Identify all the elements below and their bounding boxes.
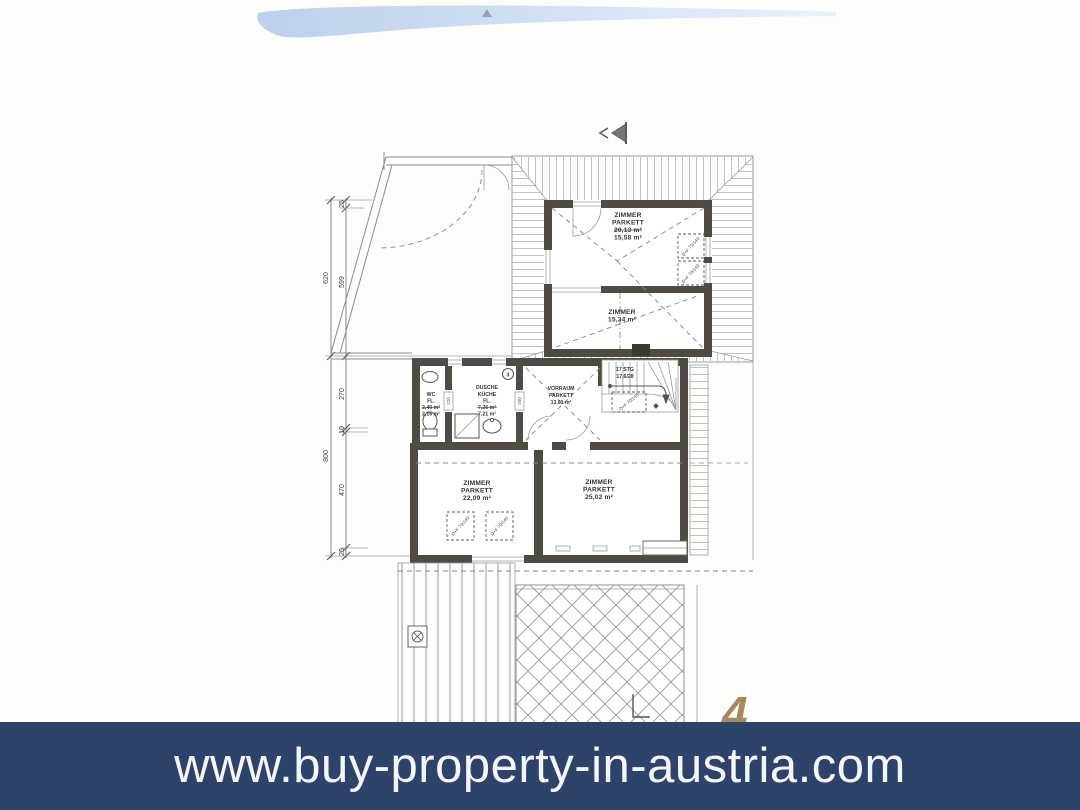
terrace-lower bbox=[398, 563, 753, 732]
partition-wall bbox=[601, 286, 704, 293]
chimney bbox=[632, 344, 650, 356]
dim-25-bottom: 25 bbox=[339, 548, 346, 556]
svg-text:ZIMMER: ZIMMER bbox=[463, 480, 490, 487]
door-size-label: 220 bbox=[446, 397, 451, 405]
svg-text:FL.: FL. bbox=[483, 399, 491, 405]
roof-slope-arc bbox=[378, 170, 482, 248]
drain-icon bbox=[408, 626, 427, 647]
room-label-zimmer-so: ZIMMER PARKETT 25,02 m² bbox=[583, 479, 615, 501]
svg-text:VORRAUM: VORRAUM bbox=[548, 386, 575, 392]
staircase: 17 STG 17,6/28 D+F 70/140 bbox=[602, 360, 678, 412]
svg-text:KÜCHE: KÜCHE bbox=[478, 391, 497, 398]
north-arrow-icon bbox=[600, 122, 626, 144]
svg-text:15,34 m²: 15,34 m² bbox=[608, 317, 637, 324]
dim-25-top: 25 bbox=[339, 200, 346, 208]
svg-text:WC: WC bbox=[427, 392, 436, 398]
svg-text:ZIMMER: ZIMMER bbox=[608, 309, 635, 316]
svg-text:ZIMMER: ZIMMER bbox=[614, 212, 641, 219]
svg-text:DUSCHE: DUSCHE bbox=[476, 385, 498, 391]
room-label-zimmer-nord: ZIMMER PARKETT 20,13 m² 15,58 m² bbox=[612, 212, 644, 242]
svg-text:13,61 m²: 13,61 m² bbox=[551, 400, 572, 406]
door-size-label: 200 bbox=[517, 397, 522, 405]
svg-text:7,26 m²: 7,26 m² bbox=[478, 405, 496, 411]
dim-10: 10 bbox=[339, 426, 346, 434]
svg-text:ZIMMER: ZIMMER bbox=[585, 479, 612, 486]
svg-text:7,21 m²: 7,21 m² bbox=[478, 412, 496, 418]
stairs-label: 17 STG bbox=[616, 367, 634, 373]
tiled-terrace bbox=[516, 585, 684, 732]
terrace-upper bbox=[331, 152, 512, 359]
svg-text:22,09 m²: 22,09 m² bbox=[463, 495, 492, 502]
dim-800: 800 bbox=[323, 450, 330, 462]
corridor-block: 220 200 WC FL. 2,40 m² 2,16 m² 3 bbox=[412, 358, 688, 450]
roof-hatch-right bbox=[690, 362, 753, 560]
svg-text:FL.: FL. bbox=[427, 399, 435, 405]
dim-620: 620 bbox=[323, 272, 330, 284]
washbasin-icon bbox=[422, 372, 438, 383]
dim-270: 270 bbox=[339, 388, 346, 400]
svg-text:PARKETT: PARKETT bbox=[583, 487, 615, 494]
svg-text:25,02 m²: 25,02 m² bbox=[585, 494, 614, 501]
header-swoosh-graphic bbox=[257, 5, 836, 37]
terrace-door-swing bbox=[484, 165, 509, 190]
svg-text:2,40 m²: 2,40 m² bbox=[422, 405, 440, 411]
dim-470: 470 bbox=[339, 484, 346, 496]
upper-room-block: D+F 70/140 D+F 70/140 ZIMMER PARKETT 20,… bbox=[544, 200, 712, 357]
scanned-floor-plan-page: 25 599 620 270 10 800 470 25 bbox=[0, 0, 1080, 810]
svg-text:PARKETT: PARKETT bbox=[461, 488, 493, 495]
website-url: www.buy-property-in-austria.com bbox=[174, 738, 906, 794]
stairs-label: 17,6/28 bbox=[616, 374, 633, 380]
floor-plan-drawing: 25 599 620 270 10 800 470 25 bbox=[0, 0, 1080, 735]
svg-text:PARKETT: PARKETT bbox=[612, 220, 644, 227]
svg-text:20,13 m²: 20,13 m² bbox=[614, 227, 643, 234]
room-label-zimmer-mitte: ZIMMER 15,34 m² bbox=[608, 309, 637, 324]
svg-text:15,58 m²: 15,58 m² bbox=[614, 235, 643, 242]
footer-banner: www.buy-property-in-austria.com bbox=[0, 722, 1080, 810]
svg-text:2,16 m²: 2,16 m² bbox=[422, 412, 440, 418]
kitchen-badge: 3 bbox=[507, 373, 510, 379]
room-label-zimmer-sw: ZIMMER PARKETT 22,09 m² bbox=[461, 480, 493, 502]
room-label-vorraum: VORRAUM PARKETT 13,61 m² bbox=[548, 386, 575, 406]
svg-text:PARKETT: PARKETT bbox=[549, 393, 574, 399]
dim-599: 599 bbox=[339, 276, 346, 288]
